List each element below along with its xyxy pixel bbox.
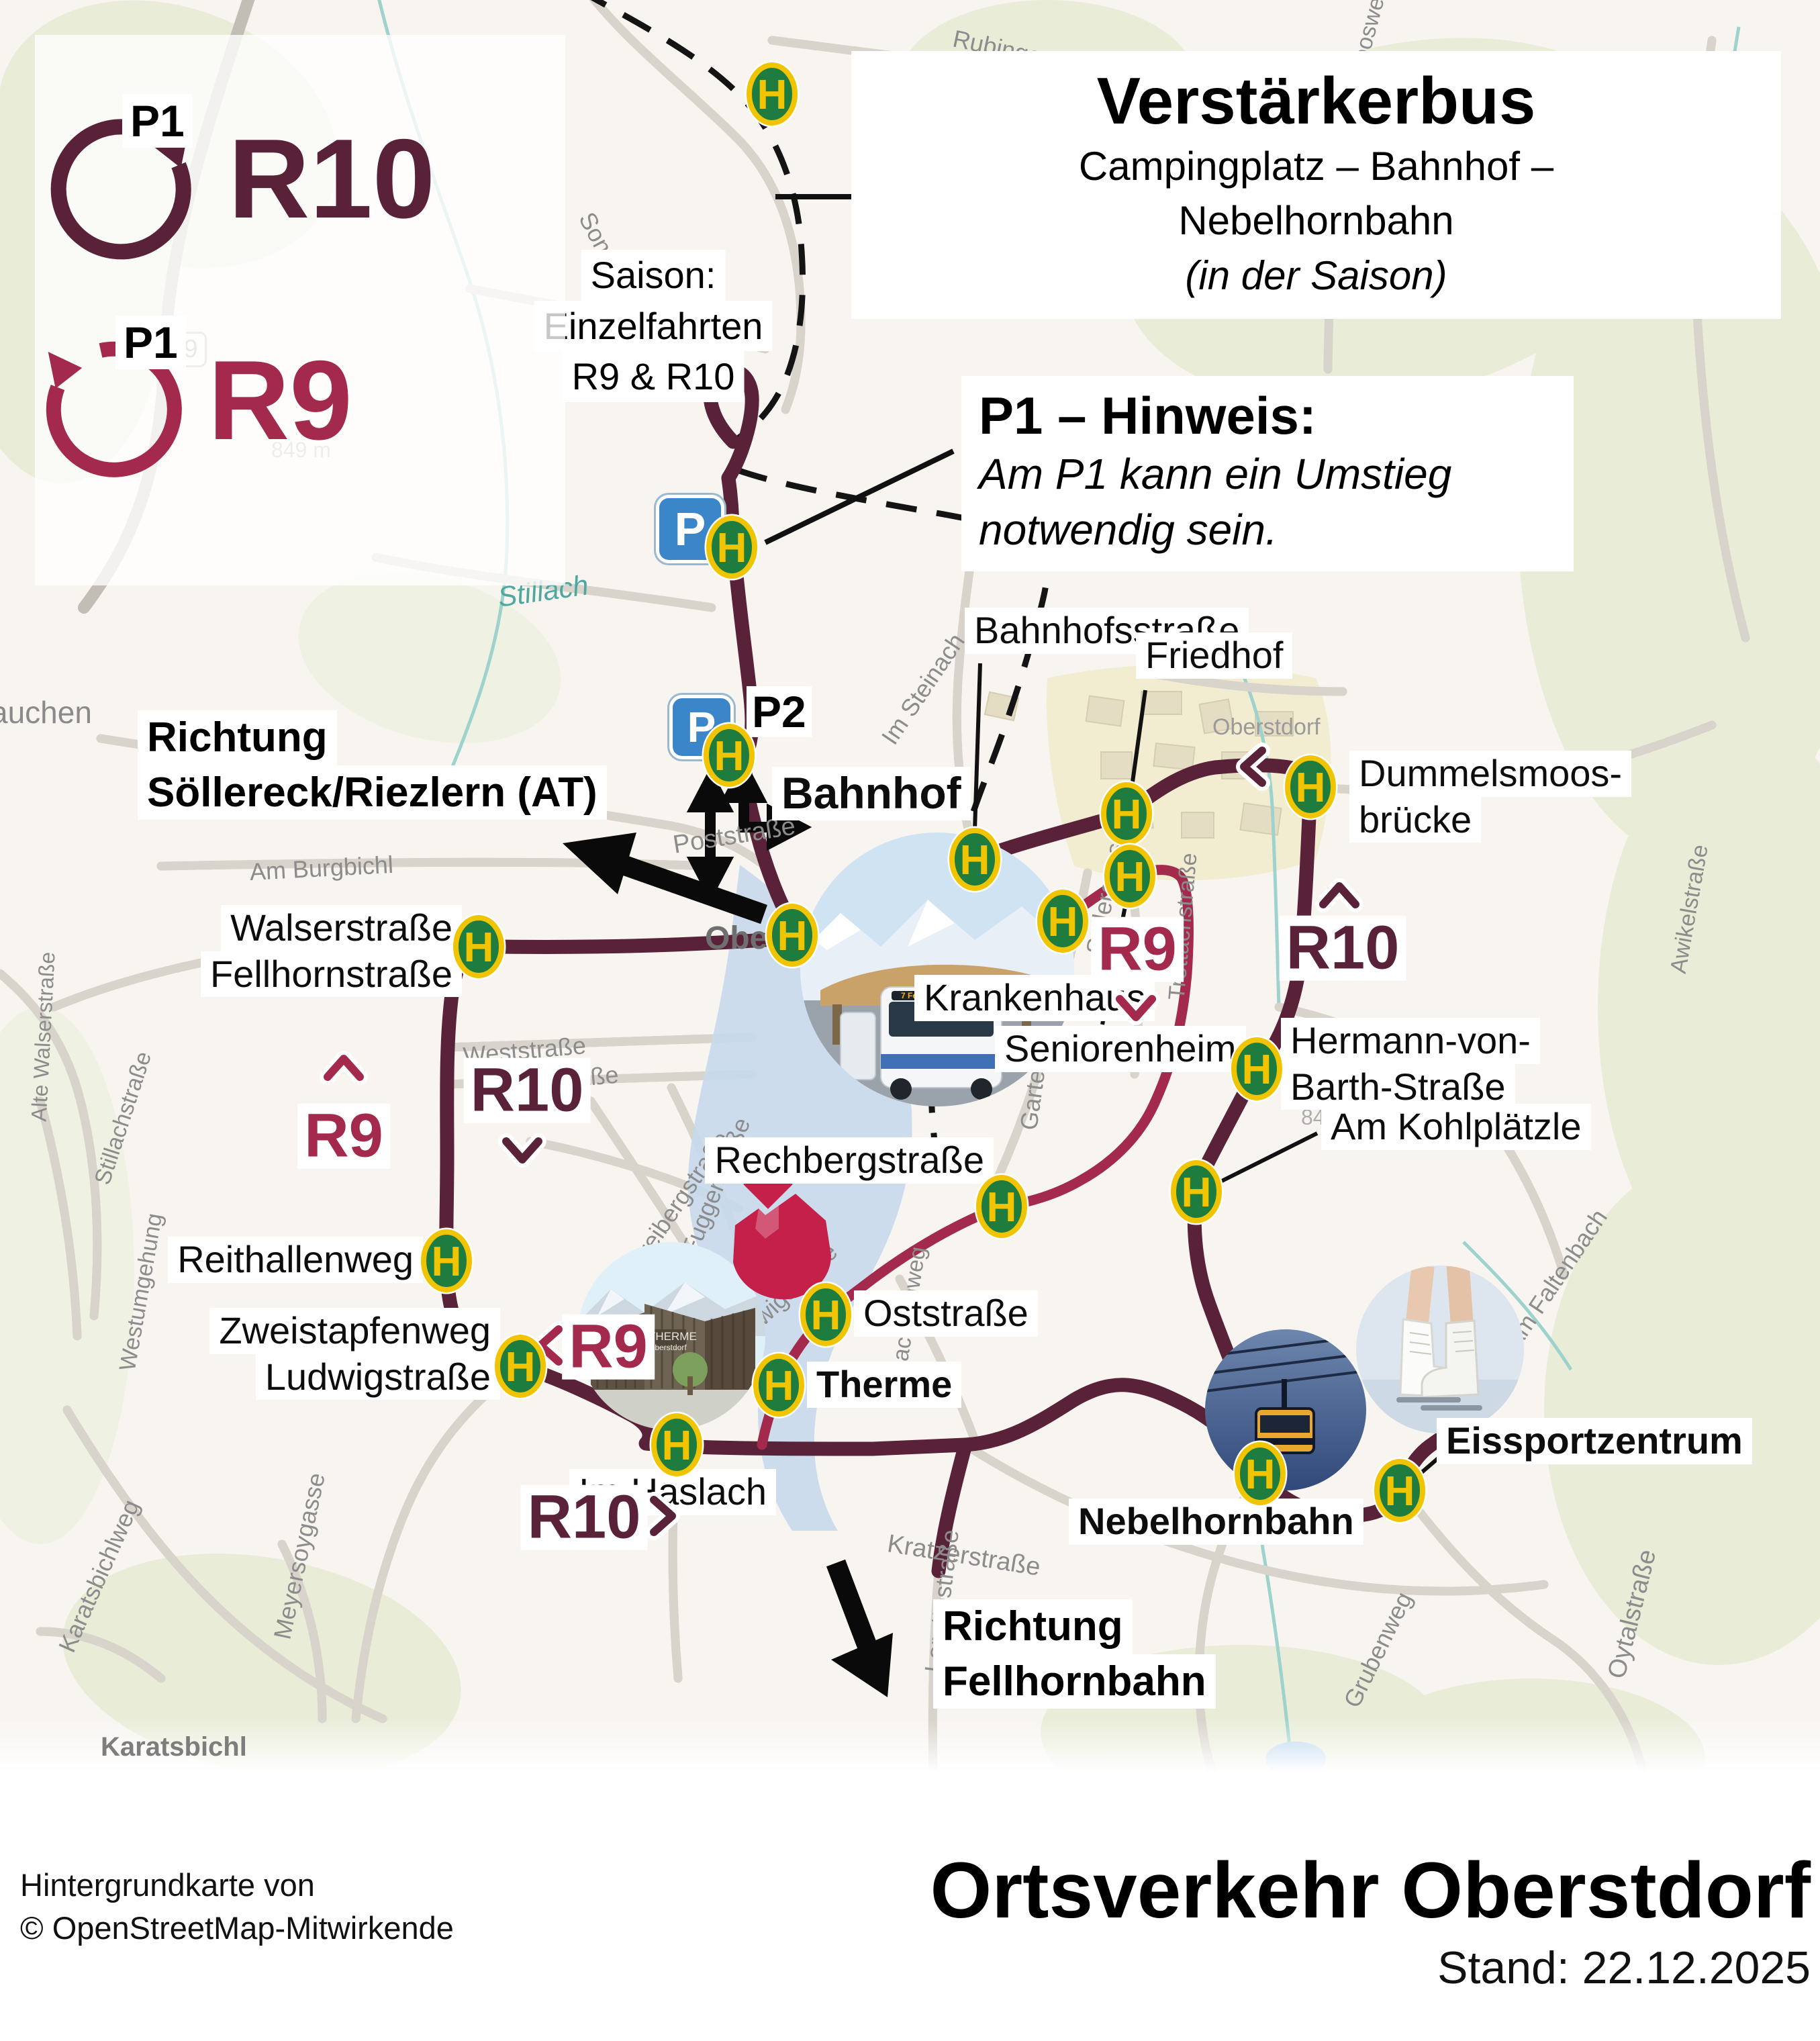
stop-label-line: Am Kohlplätzle xyxy=(1321,1104,1591,1150)
svg-text:H: H xyxy=(757,72,787,118)
poster-date: Stand: 22.12.2025 xyxy=(1437,1942,1811,1994)
direction-fellhornbahn-line2: Fellhornbahn xyxy=(933,1654,1216,1709)
svg-text:H: H xyxy=(811,1292,841,1339)
bus-stop-friedhof: H xyxy=(1099,780,1154,847)
saison-line3: R9 & R10 xyxy=(563,351,745,402)
svg-text:H: H xyxy=(662,1423,692,1469)
stop-label-therme: Therme xyxy=(807,1362,961,1408)
svg-text:H: H xyxy=(777,913,808,959)
stop-label-line: Bahnhof xyxy=(772,767,971,820)
bus-stop-im-haslach: H xyxy=(649,1411,704,1478)
street-name-oberstdorf: Oberstdorf xyxy=(1212,714,1321,741)
svg-text:H: H xyxy=(1115,854,1145,900)
bus-stop-hermann-von-barth: H xyxy=(1229,1035,1284,1102)
stop-label-line: Seniorenheim xyxy=(995,1026,1246,1072)
bus-stop-zweistapfenweg: H xyxy=(493,1333,548,1400)
legend-r10-label: R10 xyxy=(228,114,435,244)
bus-stop-bahnhof: H xyxy=(765,902,820,969)
svg-text:H: H xyxy=(714,733,745,779)
legend-r10-p1: P1 xyxy=(122,94,193,148)
bus-stop-reithallenweg: H xyxy=(419,1227,474,1294)
stop-label-reithallenweg: Reithallenweg xyxy=(168,1237,423,1283)
route-badge-r9-east: R9 xyxy=(1091,917,1184,982)
svg-text:H: H xyxy=(506,1344,536,1390)
stop-label-hermann-von-barth: Hermann-von-Barth-Straße xyxy=(1281,1018,1540,1110)
route-chevron-r10-west xyxy=(497,1124,548,1175)
bus-stop-therme: H xyxy=(751,1351,806,1419)
route-chevron-r9-west xyxy=(318,1043,369,1094)
route-badge-r10-west: R10 xyxy=(464,1058,591,1123)
stop-label-line: Eissportzentrum xyxy=(1437,1418,1752,1464)
svg-text:H: H xyxy=(764,1363,794,1409)
route-chevron-r10-east xyxy=(1314,871,1365,922)
stop-label-seniorenheim: Seniorenheim xyxy=(995,1026,1246,1072)
stop-label-bahnhof: Bahnhof xyxy=(772,767,971,820)
svg-text:H: H xyxy=(1112,792,1142,838)
verstaerkerbus-line1: Campingplatz – Bahnhof – xyxy=(851,139,1781,193)
direction-fellhornbahn: Richtung Fellhornbahn xyxy=(933,1599,1216,1709)
bus-stop-campingplatz: H xyxy=(745,60,800,128)
saison-line1: Saison: xyxy=(581,250,726,301)
stop-label-friedhof: Friedhof xyxy=(1136,632,1292,679)
bus-stop-krankenhaus: H xyxy=(1035,888,1090,955)
route-chevron-r10-friedhofline xyxy=(1229,741,1280,792)
street-name-auchen: auchen xyxy=(0,694,92,730)
bus-stop-seniorenheim: H xyxy=(1102,843,1157,910)
svg-text:H: H xyxy=(464,924,494,971)
saison-note: Saison: Einzelfahrten R9 & R10 xyxy=(534,250,773,402)
stop-label-line: Walserstraße xyxy=(221,905,462,951)
hinweis-title: P1 – Hinweis: xyxy=(979,385,1556,446)
svg-text:H: H xyxy=(717,525,747,571)
stop-label-line: Zweistapfenweg xyxy=(209,1308,500,1354)
svg-text:H: H xyxy=(1296,765,1326,811)
direction-soellereck-line1: Richtung xyxy=(138,710,337,765)
stop-label-rechbergstrasse: Rechbergstraße xyxy=(705,1137,994,1184)
svg-text:H: H xyxy=(1245,1452,1276,1498)
therme-sign: THERMEOberstdorf xyxy=(649,1331,697,1352)
route-chevron-r9-east xyxy=(1110,982,1161,1033)
credit-line1: Hintergrundkarte von xyxy=(20,1866,315,1903)
route-chevron-r10-bottom xyxy=(636,1490,687,1541)
stop-label-nebelhornbahn: Nebelhornbahn xyxy=(1069,1499,1363,1545)
direction-soellereck: Richtung Söllereck/Riezlern (AT) xyxy=(138,710,607,820)
poster-title: Ortsverkehr Oberstdorf xyxy=(930,1845,1811,1936)
verstaerkerbus-note: Verstärkerbus Campingplatz – Bahnhof – N… xyxy=(851,51,1781,319)
p1-hinweis-note: P1 – Hinweis: Am P1 kann ein Umstieg not… xyxy=(961,376,1574,571)
stop-label-line: Ludwigstraße xyxy=(256,1354,500,1401)
svg-text:H: H xyxy=(432,1239,462,1285)
bus-stop-eissportzentrum: H xyxy=(1372,1457,1427,1524)
eissport-skates-photo xyxy=(1356,1266,1524,1433)
bus-stop-rechbergstrasse: H xyxy=(974,1173,1029,1240)
route-badge-r10-east: R10 xyxy=(1280,916,1406,981)
verstaerkerbus-line3: (in der Saison) xyxy=(851,248,1781,304)
stop-label-eissportzentrum: Eissportzentrum xyxy=(1437,1418,1752,1464)
bus-stop-am-kohlplaetzle: H xyxy=(1169,1158,1224,1225)
bus-stop-dummelsmoosbruecke: H xyxy=(1283,753,1338,820)
saison-line2: Einzelfahrten xyxy=(534,301,773,352)
hinweis-line2: notwendig sein. xyxy=(979,502,1556,558)
hinweis-line1: Am P1 kann ein Umstieg xyxy=(979,446,1556,502)
transit-map-poster: 7 Fellhornbahn xyxy=(0,0,1820,2041)
stop-label-line: Friedhof xyxy=(1136,632,1292,679)
stop-label-line: brücke xyxy=(1349,797,1481,843)
bus-stop-nebelhornbahn: H xyxy=(1233,1440,1288,1507)
street-name-karatsbichl: Karatsbichl xyxy=(101,1732,247,1762)
stop-label-line: Reithallenweg xyxy=(168,1237,423,1283)
route-badge-r10-bottom: R10 xyxy=(521,1485,648,1550)
svg-text:H: H xyxy=(1385,1468,1415,1515)
stop-label-line: Rechbergstraße xyxy=(705,1137,994,1184)
map-bottom-fade xyxy=(0,1719,1820,1772)
bus-stop-walserstrasse: H xyxy=(451,913,506,980)
stop-label-dummelsmoosbruecke: Dummelsmoos-brücke xyxy=(1349,751,1631,843)
verstaerkerbus-line2: Nebelhornbahn xyxy=(851,193,1781,248)
stop-label-line: Oststraße xyxy=(854,1290,1038,1337)
stop-label-line: Nebelhornbahn xyxy=(1069,1499,1363,1545)
direction-soellereck-line2: Söllereck/Riezlern (AT) xyxy=(138,765,607,820)
stop-label-line: Dummelsmoos- xyxy=(1349,751,1631,797)
bus-stop-bahnhofsstrasse: H xyxy=(947,826,1002,893)
stop-label-oststrasse: Oststraße xyxy=(854,1290,1038,1337)
svg-text:H: H xyxy=(1242,1047,1272,1093)
svg-text:H: H xyxy=(987,1184,1017,1231)
direction-fellhornbahn-line1: Richtung xyxy=(933,1599,1133,1654)
legend-r9-p1: P1 xyxy=(115,316,186,369)
legend-r9-label: R9 xyxy=(208,336,352,465)
bus-stop-oststrasse: H xyxy=(798,1281,853,1348)
stop-label-line: Therme xyxy=(807,1362,961,1408)
svg-text:H: H xyxy=(1048,899,1078,945)
stop-label-line: Hermann-von- xyxy=(1281,1018,1540,1064)
stop-label-line: Fellhornstraße xyxy=(201,951,462,998)
footer: Hintergrundkarte von © OpenStreetMap-Mit… xyxy=(0,1772,1820,2041)
stop-label-walserstrasse: WalserstraßeFellhornstraße xyxy=(201,905,462,997)
stop-label-am-kohlplaetzle: Am Kohlplätzle xyxy=(1321,1104,1591,1150)
stop-label-zweistapfenweg: ZweistapfenwegLudwigstraße xyxy=(209,1308,500,1400)
credit-line2: © OpenStreetMap-Mitwirkende xyxy=(20,1909,454,1946)
bus-stop-p2: H xyxy=(702,722,757,789)
route-badge-r9-west: R9 xyxy=(297,1104,390,1169)
verstaerkerbus-title: Verstärkerbus xyxy=(851,63,1781,139)
bus-stop-p1: H xyxy=(704,514,759,581)
svg-text:H: H xyxy=(1182,1170,1212,1216)
svg-text:H: H xyxy=(960,837,990,884)
